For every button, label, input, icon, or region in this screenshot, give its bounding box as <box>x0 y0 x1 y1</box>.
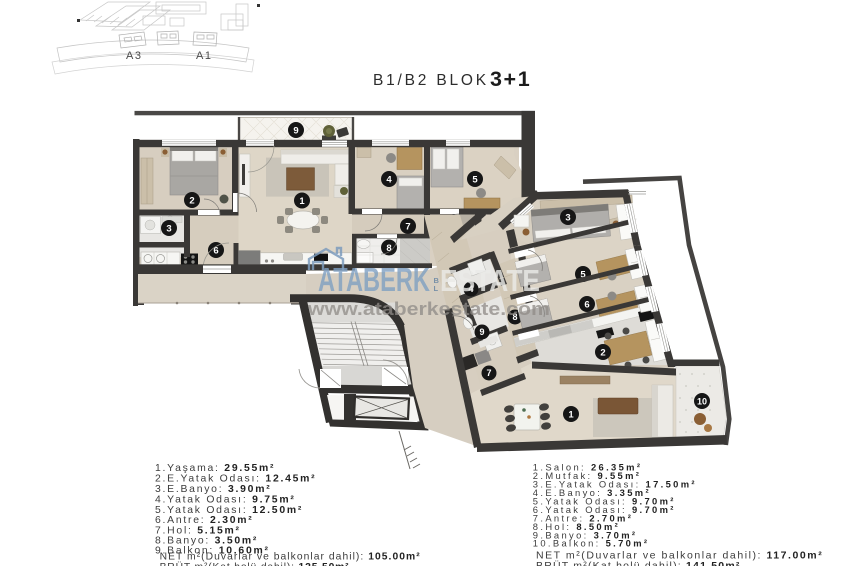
svg-text:www.ataberkestate.com: www.ataberkestate.com <box>307 298 550 319</box>
svg-text:1: 1 <box>568 409 574 420</box>
svg-text:1.Yaşama: 29.55m²: 1.Yaşama: 29.55m² <box>155 463 275 474</box>
svg-text:6: 6 <box>584 299 589 310</box>
svg-text:9: 9 <box>479 327 484 337</box>
svg-text:3: 3 <box>565 212 570 223</box>
svg-text:10.Balkon: 5.70m²: 10.Balkon: 5.70m² <box>533 538 650 549</box>
svg-text:7: 7 <box>405 221 410 232</box>
svg-text:BRÜT m²(Kat holü dahil): 125.5: BRÜT m²(Kat holü dahil): 125.50m² <box>160 561 350 566</box>
svg-text:4: 4 <box>386 174 392 185</box>
svg-text:2: 2 <box>600 347 605 358</box>
svg-text:A1: A1 <box>196 50 212 62</box>
svg-text:2: 2 <box>189 195 194 206</box>
svg-text:2.E.Yatak Odası: 12.45m²: 2.E.Yatak Odası: 12.45m² <box>155 473 316 484</box>
svg-text:3+1: 3+1 <box>490 67 531 91</box>
svg-text:4.Yatak Odası: 9.75m²: 4.Yatak Odası: 9.75m² <box>155 494 296 505</box>
svg-text:NET m²(Duvarlar ve balkonlar d: NET m²(Duvarlar ve balkonlar dahil): 105… <box>160 552 421 563</box>
svg-text:ESTATE: ESTATE <box>440 263 540 298</box>
svg-text:3.E.Banyo: 3.90m²: 3.E.Banyo: 3.90m² <box>155 484 271 495</box>
svg-text:5: 5 <box>472 174 478 185</box>
svg-text:B1/B2 BLOK: B1/B2 BLOK <box>373 72 489 89</box>
svg-text:1: 1 <box>299 196 305 207</box>
svg-text:BRÜT m²(Kat holü dahil): 141.5: BRÜT m²(Kat holü dahil): 141.50m² <box>536 560 741 566</box>
svg-text:L: L <box>434 284 439 293</box>
svg-text:7: 7 <box>486 368 491 378</box>
svg-text:3: 3 <box>166 223 171 234</box>
svg-text:10: 10 <box>697 396 707 406</box>
svg-text:A3: A3 <box>126 50 142 62</box>
svg-text:9: 9 <box>293 125 298 136</box>
svg-text:6: 6 <box>213 245 218 256</box>
svg-text:ATABERK: ATABERK <box>318 261 430 298</box>
